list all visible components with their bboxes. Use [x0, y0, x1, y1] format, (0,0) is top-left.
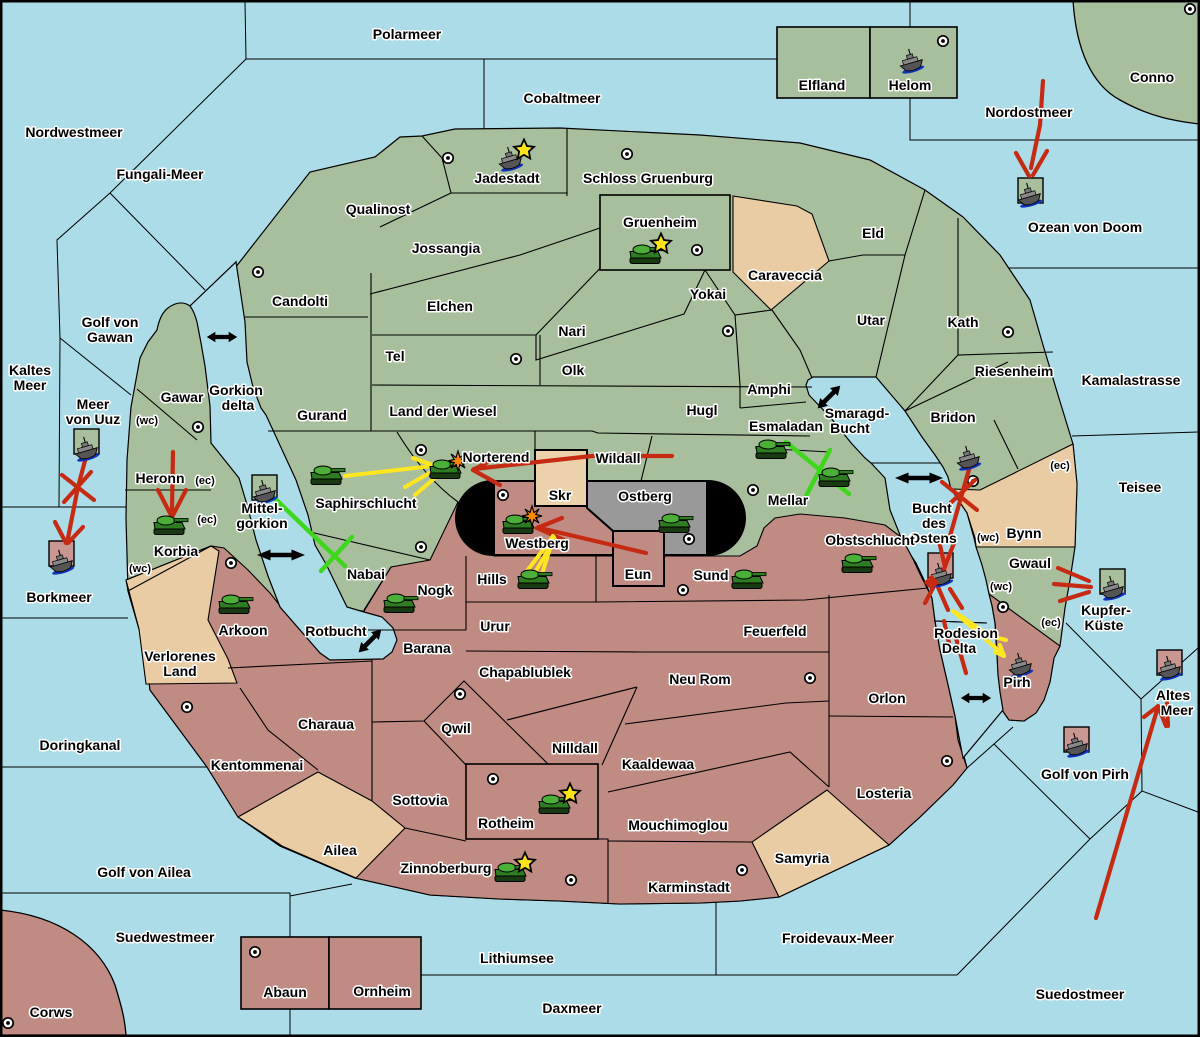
svg-text:Bridon: Bridon [930, 409, 975, 425]
svg-text:Smaragd-: Smaragd- [825, 405, 890, 421]
svg-text:Esmaladan: Esmaladan [749, 418, 823, 434]
svg-text:Ailea: Ailea [323, 842, 357, 858]
svg-text:(wc): (wc) [129, 563, 151, 575]
svg-text:Qwil: Qwil [441, 720, 471, 736]
svg-text:Qualinost: Qualinost [346, 201, 411, 217]
svg-text:Obstschlucht: Obstschlucht [825, 532, 915, 548]
svg-text:Borkmeer: Borkmeer [26, 589, 92, 605]
svg-text:(wc): (wc) [977, 532, 999, 544]
svg-text:Fungali-Meer: Fungali-Meer [116, 166, 204, 182]
svg-text:(ec): (ec) [1041, 617, 1061, 629]
svg-text:Heronn: Heronn [136, 470, 185, 486]
svg-text:Land der Wiesel: Land der Wiesel [389, 403, 496, 419]
svg-text:Elfland: Elfland [799, 77, 846, 93]
svg-text:Westberg: Westberg [505, 535, 569, 551]
svg-text:Daxmeer: Daxmeer [542, 1000, 602, 1016]
svg-text:Hills: Hills [477, 571, 507, 587]
svg-text:Skr: Skr [549, 487, 572, 503]
svg-text:(wc): (wc) [990, 581, 1012, 593]
svg-text:Altes: Altes [1156, 687, 1190, 703]
svg-text:Suedostmeer: Suedostmeer [1036, 986, 1125, 1002]
svg-text:Caraveccia: Caraveccia [748, 267, 822, 283]
svg-text:(ec): (ec) [1050, 460, 1070, 472]
svg-text:Barana: Barana [403, 640, 451, 656]
svg-text:Feuerfeld: Feuerfeld [743, 623, 806, 639]
svg-text:Abaun: Abaun [263, 984, 307, 1000]
svg-text:Eun: Eun [625, 566, 651, 582]
svg-text:Kaaldewaa: Kaaldewaa [622, 756, 695, 772]
svg-text:Bynn: Bynn [1007, 525, 1042, 541]
svg-text:Candolti: Candolti [272, 293, 328, 309]
svg-text:Rotbucht: Rotbucht [305, 623, 367, 639]
svg-text:Golf von: Golf von [82, 314, 139, 330]
svg-text:Cobaltmeer: Cobaltmeer [523, 90, 601, 106]
svg-text:Ostberg: Ostberg [618, 488, 672, 504]
svg-text:von Uuz: von Uuz [66, 411, 120, 427]
svg-text:Neu Rom: Neu Rom [669, 671, 730, 687]
svg-text:Meer: Meer [77, 396, 110, 412]
svg-text:Gurand: Gurand [297, 407, 347, 423]
svg-text:Wildall: Wildall [596, 450, 641, 466]
svg-text:(ec): (ec) [197, 514, 217, 526]
svg-text:Korbia: Korbia [154, 543, 199, 559]
svg-text:Sottovia: Sottovia [392, 792, 447, 808]
svg-text:Saphirschlucht: Saphirschlucht [315, 495, 416, 511]
svg-text:Suedwestmeer: Suedwestmeer [116, 929, 215, 945]
svg-text:Ozean von Doom: Ozean von Doom [1028, 219, 1142, 235]
svg-text:(ec): (ec) [195, 475, 215, 487]
svg-text:Golf von Ailea: Golf von Ailea [97, 864, 191, 880]
svg-text:Olk: Olk [562, 362, 585, 378]
svg-text:Urur: Urur [480, 618, 510, 634]
svg-text:Bucht: Bucht [830, 420, 870, 436]
svg-text:Sund: Sund [694, 567, 729, 583]
svg-text:Gruenheim: Gruenheim [623, 214, 697, 230]
svg-text:Zinnoberburg: Zinnoberburg [401, 860, 492, 876]
svg-text:Corws: Corws [30, 1004, 73, 1020]
svg-text:Mittel-: Mittel- [241, 500, 283, 516]
svg-text:Karminstadt: Karminstadt [648, 879, 730, 895]
svg-text:Eld: Eld [862, 225, 884, 241]
svg-text:Hugl: Hugl [686, 402, 717, 418]
svg-text:Polarmeer: Polarmeer [373, 26, 442, 42]
svg-text:Nogk: Nogk [418, 582, 453, 598]
svg-text:Samyria: Samyria [775, 850, 830, 866]
svg-text:Ornheim: Ornheim [353, 983, 411, 999]
svg-text:Meer: Meer [1161, 702, 1194, 718]
svg-text:Kaltes: Kaltes [9, 362, 51, 378]
svg-text:Kath: Kath [947, 314, 978, 330]
svg-text:Doringkanal: Doringkanal [40, 737, 121, 753]
svg-text:Kupfer-: Kupfer- [1081, 602, 1131, 618]
svg-text:Conno: Conno [1130, 69, 1174, 85]
svg-text:Rodesion: Rodesion [934, 625, 998, 641]
svg-text:Helom: Helom [889, 77, 932, 93]
svg-text:Pirh: Pirh [1003, 674, 1030, 690]
svg-text:Yokai: Yokai [690, 286, 726, 302]
svg-text:Rotheim: Rotheim [478, 815, 534, 831]
svg-text:Küste: Küste [1085, 617, 1124, 633]
svg-text:Schloss Gruenburg: Schloss Gruenburg [583, 170, 713, 186]
svg-text:Gorkion: Gorkion [209, 382, 263, 398]
svg-text:delta: delta [222, 397, 255, 413]
svg-text:Losteria: Losteria [857, 785, 912, 801]
svg-text:Kamalastrasse: Kamalastrasse [1082, 372, 1181, 388]
svg-text:Charaua: Charaua [298, 716, 354, 732]
svg-text:Gawar: Gawar [161, 389, 204, 405]
svg-text:Golf von Pirh: Golf von Pirh [1041, 766, 1129, 782]
svg-text:Riesenheim: Riesenheim [975, 363, 1054, 379]
svg-text:Meer: Meer [14, 377, 47, 393]
svg-text:Gwaul: Gwaul [1009, 555, 1051, 571]
svg-text:Land: Land [163, 663, 196, 679]
svg-text:Ostens: Ostens [909, 530, 957, 546]
svg-text:Jadestadt: Jadestadt [474, 170, 540, 186]
svg-text:Amphi: Amphi [747, 381, 791, 397]
svg-text:Froidevaux-Meer: Froidevaux-Meer [782, 930, 895, 946]
svg-text:Verlorenes: Verlorenes [144, 648, 216, 664]
svg-text:Utar: Utar [857, 312, 886, 328]
svg-text:Kentommenai: Kentommenai [211, 757, 304, 773]
svg-text:Chapablublek: Chapablublek [479, 664, 571, 680]
svg-text:(wc): (wc) [136, 415, 158, 427]
svg-text:Tel: Tel [385, 348, 404, 364]
svg-text:Nordostmeer: Nordostmeer [985, 104, 1073, 120]
svg-text:Nari: Nari [558, 323, 585, 339]
svg-text:Teisee: Teisee [1119, 479, 1162, 495]
svg-text:Arkoon: Arkoon [219, 622, 268, 638]
svg-text:Bucht: Bucht [912, 500, 952, 516]
svg-text:Mouchimoglou: Mouchimoglou [628, 817, 728, 833]
svg-text:Orlon: Orlon [868, 690, 905, 706]
svg-text:Nordwestmeer: Nordwestmeer [25, 124, 123, 140]
svg-text:Gawan: Gawan [87, 329, 133, 345]
svg-text:des: des [922, 515, 946, 531]
svg-text:Nabai: Nabai [347, 566, 385, 582]
svg-text:gorkion: gorkion [236, 515, 287, 531]
svg-text:Lithiumsee: Lithiumsee [480, 950, 554, 966]
svg-text:Jossangia: Jossangia [412, 240, 481, 256]
svg-text:Norterend: Norterend [463, 449, 530, 465]
svg-text:Mellar: Mellar [768, 492, 809, 508]
svg-text:Delta: Delta [942, 640, 976, 656]
svg-text:Nilldall: Nilldall [552, 740, 598, 756]
svg-text:Elchen: Elchen [427, 298, 473, 314]
